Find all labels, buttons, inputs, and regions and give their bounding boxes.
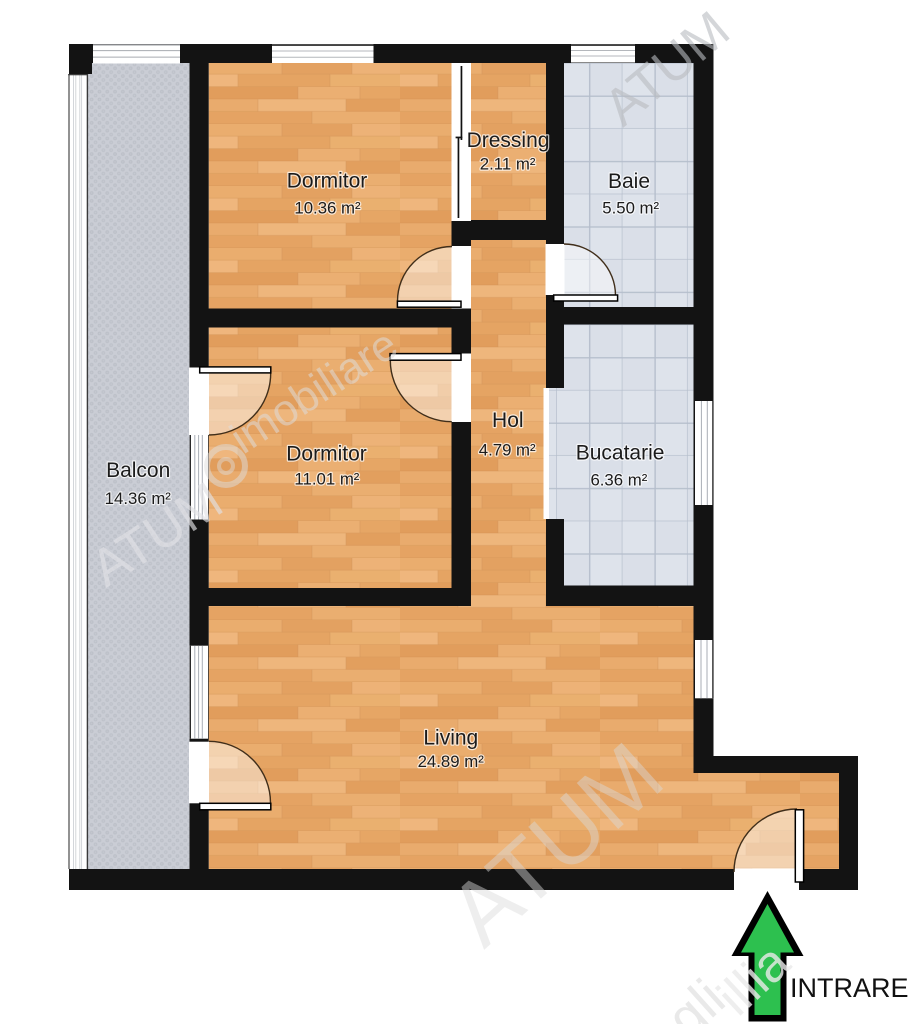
svg-text:14.36 m²: 14.36 m² — [105, 489, 172, 508]
svg-text:6.36 m²: 6.36 m² — [590, 471, 647, 490]
svg-text:Dressing: Dressing — [467, 129, 550, 152]
svg-text:Bucatarie: Bucatarie — [576, 441, 665, 464]
svg-text:2.11 m²: 2.11 m² — [480, 154, 536, 173]
svg-text:Baie: Baie — [608, 170, 650, 193]
svg-text:4.79 m²: 4.79 m² — [479, 441, 536, 460]
svg-text:10.36 m²: 10.36 m² — [294, 199, 361, 218]
svg-text:Dormitor: Dormitor — [286, 442, 367, 465]
svg-text:Balcon: Balcon — [106, 459, 170, 482]
svg-text:Living: Living — [423, 726, 478, 749]
svg-text:INTRARE: INTRARE — [790, 973, 909, 1003]
svg-text:5.50 m²: 5.50 m² — [602, 199, 659, 218]
svg-text:24.89 m²: 24.89 m² — [418, 752, 485, 771]
svg-text:Hol: Hol — [492, 409, 524, 432]
svg-text:Dormitor: Dormitor — [287, 170, 368, 193]
svg-text:11.01 m²: 11.01 m² — [294, 470, 359, 489]
